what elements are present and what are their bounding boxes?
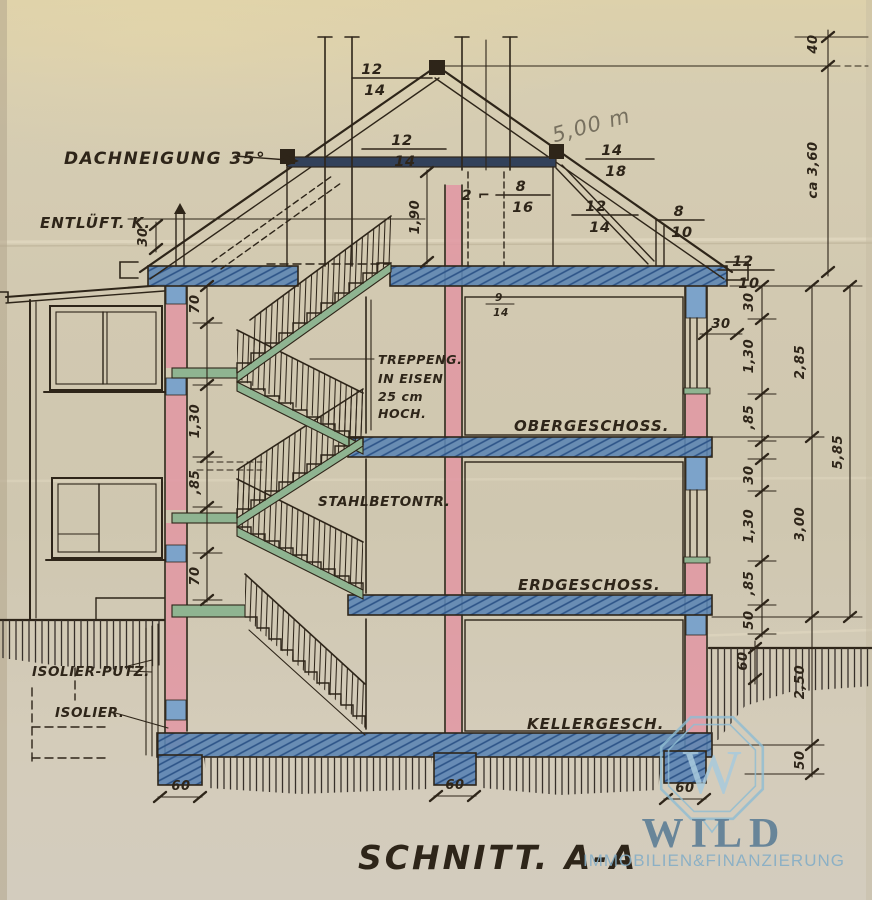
dim-footing-left: 60 <box>171 779 190 794</box>
timber-collar-n: 8 <box>516 179 527 195</box>
watermark-subtitle: IMMOBILIEN&FINANZIERUNG <box>583 851 845 870</box>
attic-floor-slab <box>148 266 727 286</box>
dim-right-inner-1: 1,30 <box>742 339 757 373</box>
dim-right-inner-2: ,85 <box>742 405 757 431</box>
timber-beam-d: 14 <box>493 307 509 319</box>
dim-right-inner-3: 30 <box>742 465 757 484</box>
dim-wall-thickness: 30 <box>711 317 730 332</box>
logo-monogram: W <box>683 739 742 807</box>
ground-hatch-under-slab-right <box>478 757 662 795</box>
dim-right-inner-6: 50 <box>742 610 757 629</box>
timber-post-d: 10 <box>671 225 692 241</box>
timber-ridge-d: 14 <box>364 83 385 99</box>
window-sill-upper <box>684 388 710 394</box>
ground-floor-slab <box>348 595 712 615</box>
ground-floor-label: ERDGESCHOSS. <box>518 576 661 594</box>
stair-note-line3: 25 cm <box>378 389 423 404</box>
timber-mid-d: 14 <box>394 154 415 170</box>
timber-strut-n: 12 <box>585 199 606 215</box>
vent-label: ENTLÜFT. K. <box>40 213 151 232</box>
section-drawing-svg: 30 1,30 ,85 30 1,30 ,85 50 2,85 3,00 2,5… <box>0 0 872 900</box>
dim-attic-height: 1,90 <box>408 200 423 234</box>
paper-edge-right <box>866 0 872 900</box>
timber-beam-n: 9 <box>495 292 503 304</box>
window-sill-lower <box>684 557 710 563</box>
insulation-label: ISOLIER. <box>55 705 125 721</box>
dim-left-2: ,85 <box>188 470 203 496</box>
upper-floor-slab <box>348 437 712 457</box>
dim-right-outer: 5,85 <box>831 435 846 469</box>
dim-right-mid-1: 3,00 <box>793 507 808 541</box>
dim-ridge-height: ca 3,60 <box>806 141 821 198</box>
dim-left-0: 70 <box>188 294 203 313</box>
dim-chimney-top: 40 <box>806 34 821 54</box>
roof-pitch-label: DACHNEIGUNG 35° <box>64 149 266 169</box>
basement-label: KELLERGESCH. <box>527 715 664 733</box>
basement-landing <box>172 605 245 617</box>
timber-purlin-n: 14 <box>601 143 622 159</box>
dim-right-mid-2: 2,50 <box>793 665 808 699</box>
dim-right-mid-3: 50 <box>793 750 808 769</box>
dim-right-inner-4: 1,30 <box>742 509 757 543</box>
timber-eave-n: 12 <box>732 254 753 270</box>
stair-note-line1: TREPPENG. <box>378 352 462 367</box>
timber-collar-prefix: 2 ⌐ <box>461 188 490 204</box>
stair-note-line4: HOCH. <box>378 406 426 421</box>
upper-floor-label: OBERGESCHOSS. <box>514 417 669 435</box>
timber-eave-d: 10 <box>738 276 759 292</box>
ridge-beam <box>429 60 445 75</box>
dim-ground-offset: 60 <box>736 651 751 670</box>
paper-edge-left <box>0 0 7 900</box>
dim-right-mid-0: 2,85 <box>793 345 808 379</box>
timber-mid-n: 12 <box>391 133 412 149</box>
half-landing-1 <box>172 368 237 378</box>
timber-strut-d: 14 <box>589 220 610 236</box>
timber-ridge-n: 12 <box>361 62 382 78</box>
dim-footing-center: 60 <box>445 778 464 793</box>
dim-left-1: 1,30 <box>188 404 203 438</box>
ground-hatch-under-slab-left <box>204 757 432 794</box>
collar-beam <box>287 157 556 167</box>
timber-collar-d: 16 <box>512 200 533 216</box>
timber-post-n: 8 <box>674 204 685 220</box>
insulation-plaster-label: ISOLIER-PUTZ. <box>32 664 150 680</box>
dim-right-inner-5: ,85 <box>742 571 757 597</box>
concrete-stair-label: STAHLBETONTR. <box>318 494 451 510</box>
dim-right-inner-0: 30 <box>742 292 757 311</box>
stair-note-line2: IN EISEN <box>378 371 443 386</box>
timber-purlin-d: 18 <box>605 164 626 180</box>
half-landing-2 <box>172 513 237 523</box>
scanned-section-drawing: 30 1,30 ,85 30 1,30 ,85 50 2,85 3,00 2,5… <box>0 0 872 900</box>
dim-left-3: 70 <box>188 566 203 585</box>
